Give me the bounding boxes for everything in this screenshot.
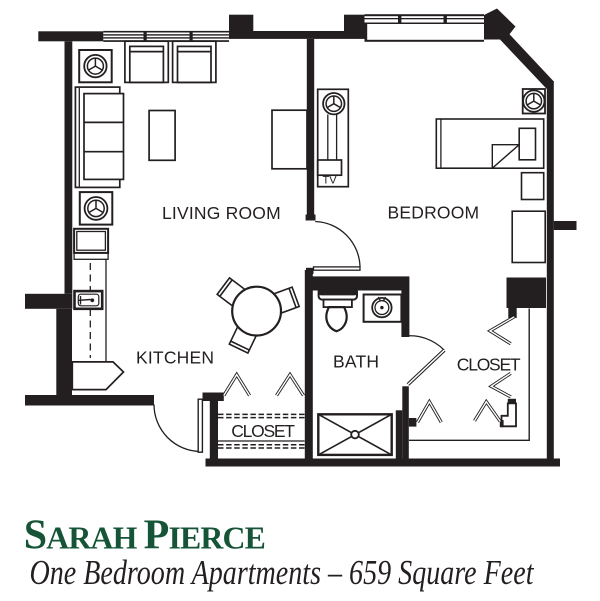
svg-text:CLOSET: CLOSET (231, 421, 295, 441)
svg-text:TV: TV (323, 175, 338, 187)
svg-text:LIVING ROOM: LIVING ROOM (162, 203, 281, 223)
svg-text:BATH: BATH (333, 352, 379, 372)
svg-text:One Bedroom Apartments – 659 S: One Bedroom Apartments – 659 Square Feet (30, 553, 535, 592)
svg-text:BEDROOM: BEDROOM (388, 203, 480, 223)
svg-text:CLOSET: CLOSET (457, 355, 521, 375)
svg-text:KITCHEN: KITCHEN (136, 348, 214, 368)
